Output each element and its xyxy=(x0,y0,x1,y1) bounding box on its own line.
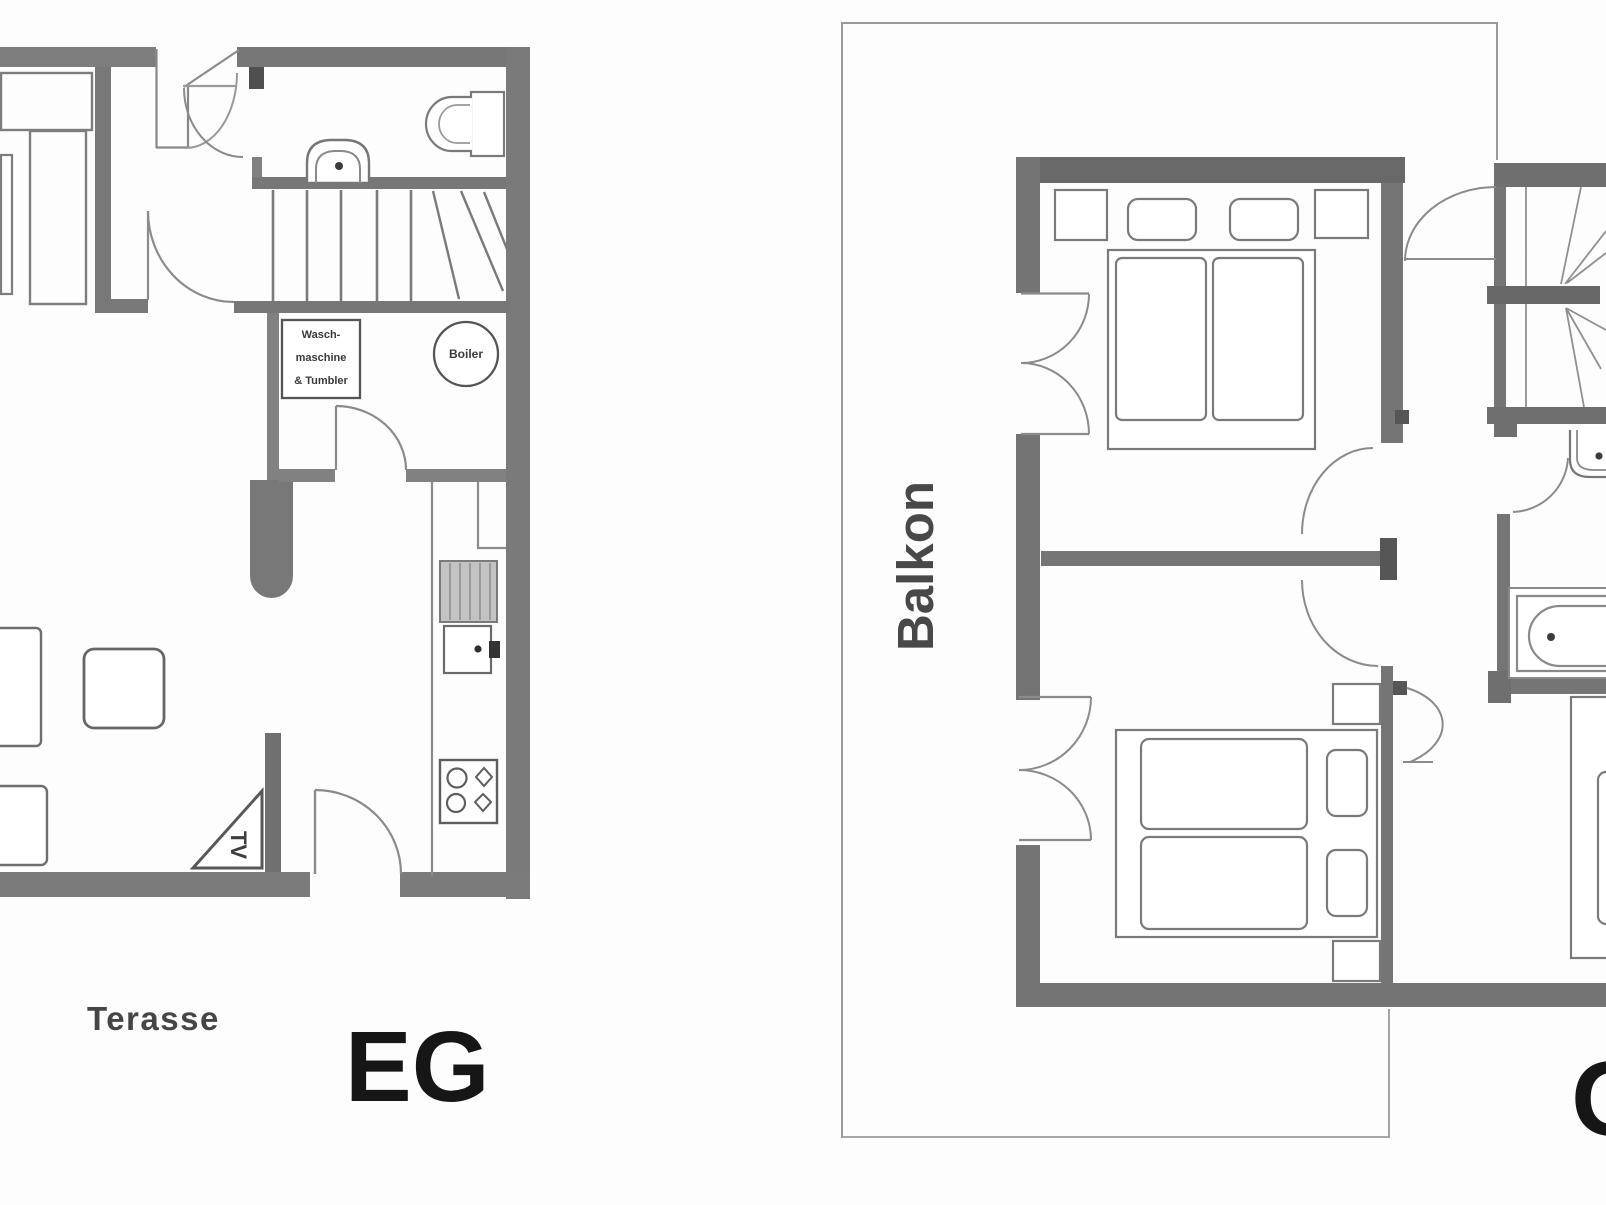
svg-text:EG: EG xyxy=(345,1011,489,1123)
svg-text:Balkon: Balkon xyxy=(887,481,944,651)
svg-text:TV: TV xyxy=(226,831,251,859)
svg-text:Boiler: Boiler xyxy=(449,347,483,361)
svg-text:Wasch-: Wasch- xyxy=(302,329,341,341)
svg-text:OG: OG xyxy=(1571,1040,1606,1158)
svg-text:& Tumbler: & Tumbler xyxy=(294,375,348,387)
svg-text:maschine: maschine xyxy=(296,352,347,364)
svg-text:Terasse: Terasse xyxy=(87,1000,220,1037)
